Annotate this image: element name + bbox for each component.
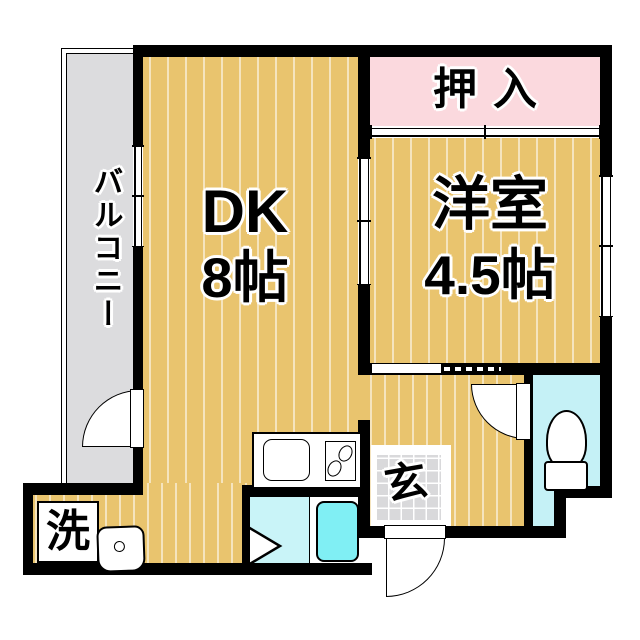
washbasin [96, 525, 146, 573]
balcony-label: バルコニー [90, 166, 120, 331]
wall-bath-left [242, 485, 250, 575]
bathtub [316, 501, 359, 562]
toilet-door [516, 383, 531, 440]
hallway-sliding-panel [371, 363, 442, 374]
open-doorway-dashed [442, 363, 503, 375]
dk-western-sliding-door [358, 157, 370, 285]
laundry-label: 洗 [46, 510, 90, 554]
dk-label: DK [150, 182, 340, 242]
western-room-window [600, 175, 612, 317]
wall-entrance-bottom-right [444, 526, 566, 538]
dk-size-label: 8帖 [150, 250, 340, 306]
floor-plan: バルコニー [0, 0, 640, 640]
drain-icon [114, 541, 125, 552]
closet-sliding-doors [370, 126, 600, 138]
balcony-door [130, 389, 144, 448]
kitchen-sink [263, 439, 310, 481]
toilet-tank [544, 461, 588, 491]
wall-bottom [23, 563, 372, 575]
laundry-box: 洗 [37, 501, 99, 563]
balcony-window [133, 145, 143, 247]
stove [325, 441, 356, 481]
front-door [384, 525, 446, 539]
front-door-swing [386, 538, 445, 597]
entrance-label: 玄 [373, 457, 439, 509]
wall-balcony-bottom [23, 483, 143, 495]
kitchen-counter [252, 432, 362, 489]
western-room-size-label: 4.5帖 [388, 248, 592, 303]
wall-top [133, 45, 612, 57]
western-room-label: 洋室 [395, 176, 585, 234]
closet-label: 押入 [370, 68, 600, 112]
wall-left-outer [23, 483, 33, 575]
